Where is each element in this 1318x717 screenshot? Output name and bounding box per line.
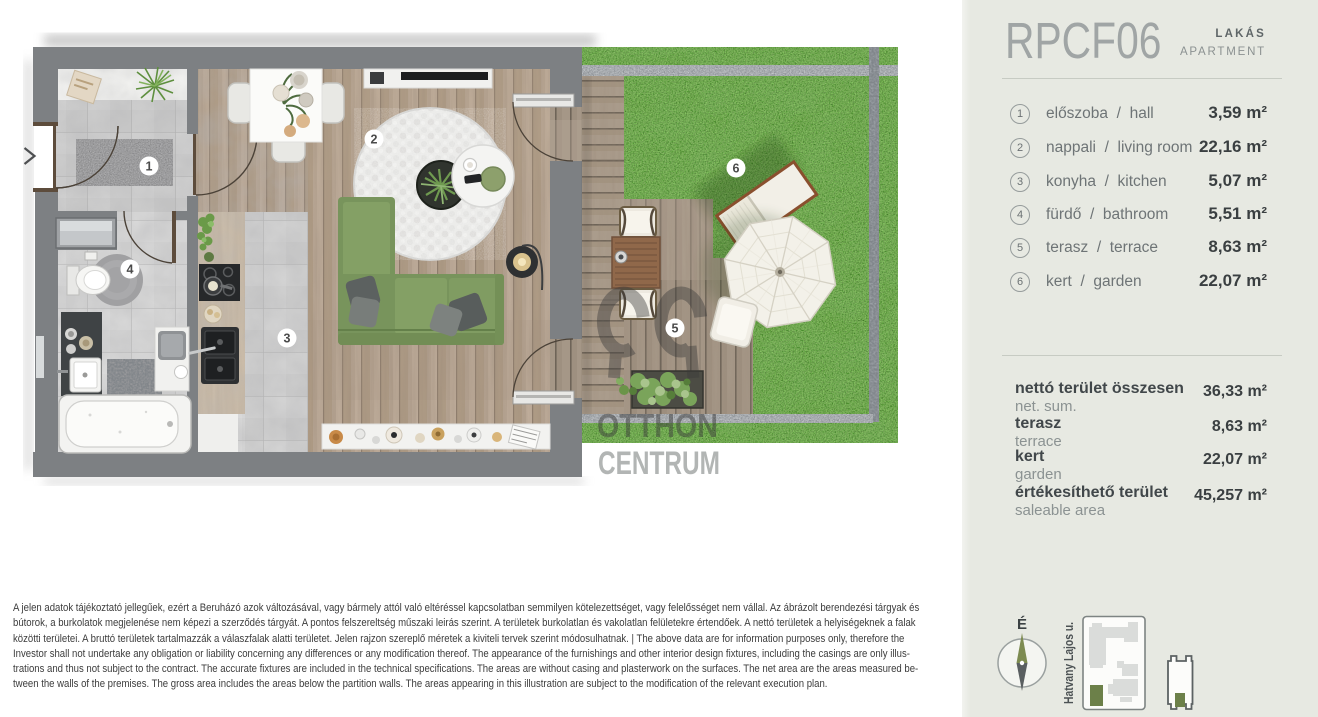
svg-text:5: 5 [672,322,679,336]
svg-text:1: 1 [146,160,153,174]
svg-text:Hatvany Lajos u.: Hatvany Lajos u. [1061,622,1076,704]
svg-text:CENTRUM: CENTRUM [598,445,720,481]
svg-text:OTTHON: OTTHON [597,407,718,444]
svg-text:4: 4 [127,263,134,277]
svg-text:6: 6 [733,162,740,176]
svg-text:2: 2 [371,133,378,147]
svg-text:3: 3 [284,332,291,346]
svg-text:É: É [1017,616,1027,633]
